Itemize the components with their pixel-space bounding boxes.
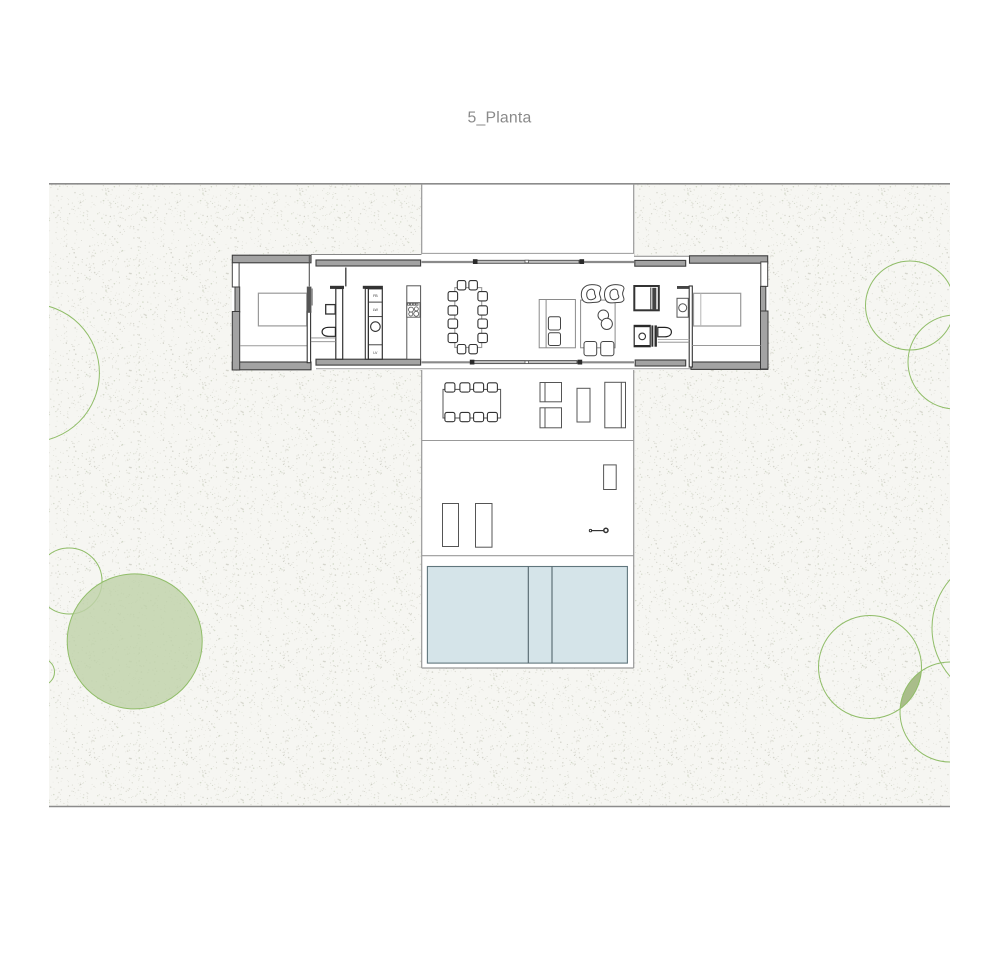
svg-text:LV: LV bbox=[373, 351, 378, 355]
svg-text:FB: FB bbox=[373, 294, 378, 298]
svg-text:LW: LW bbox=[373, 308, 379, 312]
svg-text:5_Planta: 5_Planta bbox=[468, 110, 532, 127]
